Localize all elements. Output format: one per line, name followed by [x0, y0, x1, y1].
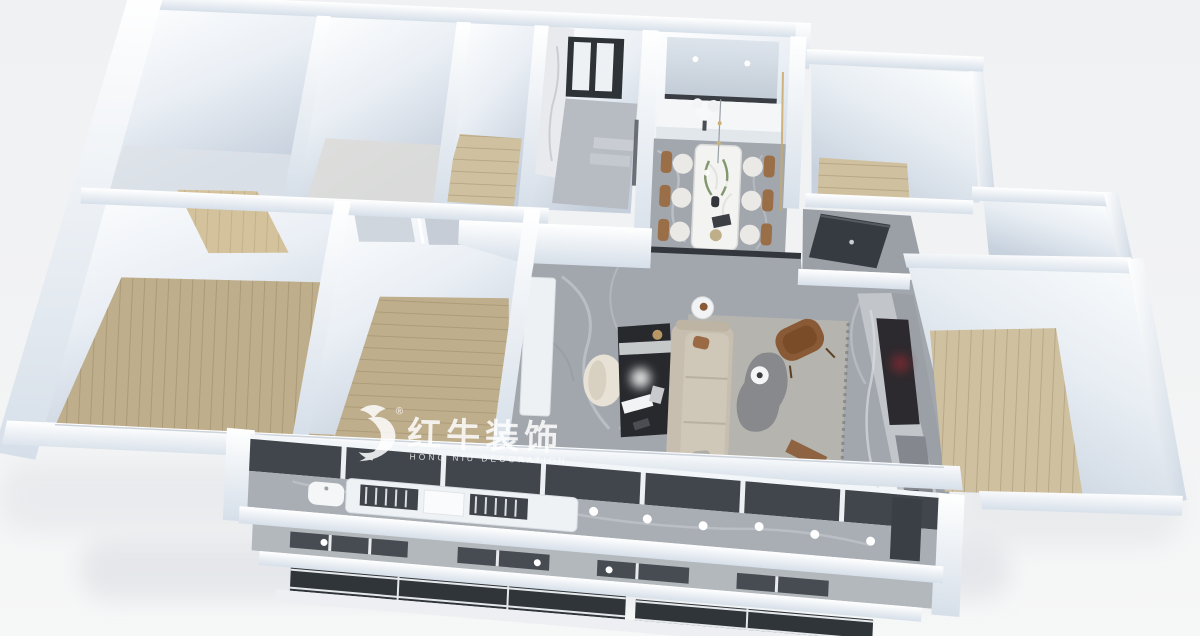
side-table — [691, 296, 714, 319]
kitchen-dark-cabinet — [890, 497, 923, 562]
floorplan-render: 17 17 5 5 — [0, 0, 1200, 636]
dining-mirror — [665, 37, 780, 102]
bathroom-window — [566, 37, 625, 99]
dining-chairs-right — [739, 154, 775, 245]
room-far-right — [981, 201, 1123, 263]
room-northeast — [806, 65, 986, 202]
dining-chairs-left — [657, 151, 693, 242]
table-vase — [711, 196, 719, 207]
floorplan-scene: 17 17 5 5 — [0, 0, 1200, 636]
registered-mark: ® — [396, 406, 404, 417]
sofa — [665, 319, 734, 476]
kitchen-sink — [308, 481, 345, 507]
